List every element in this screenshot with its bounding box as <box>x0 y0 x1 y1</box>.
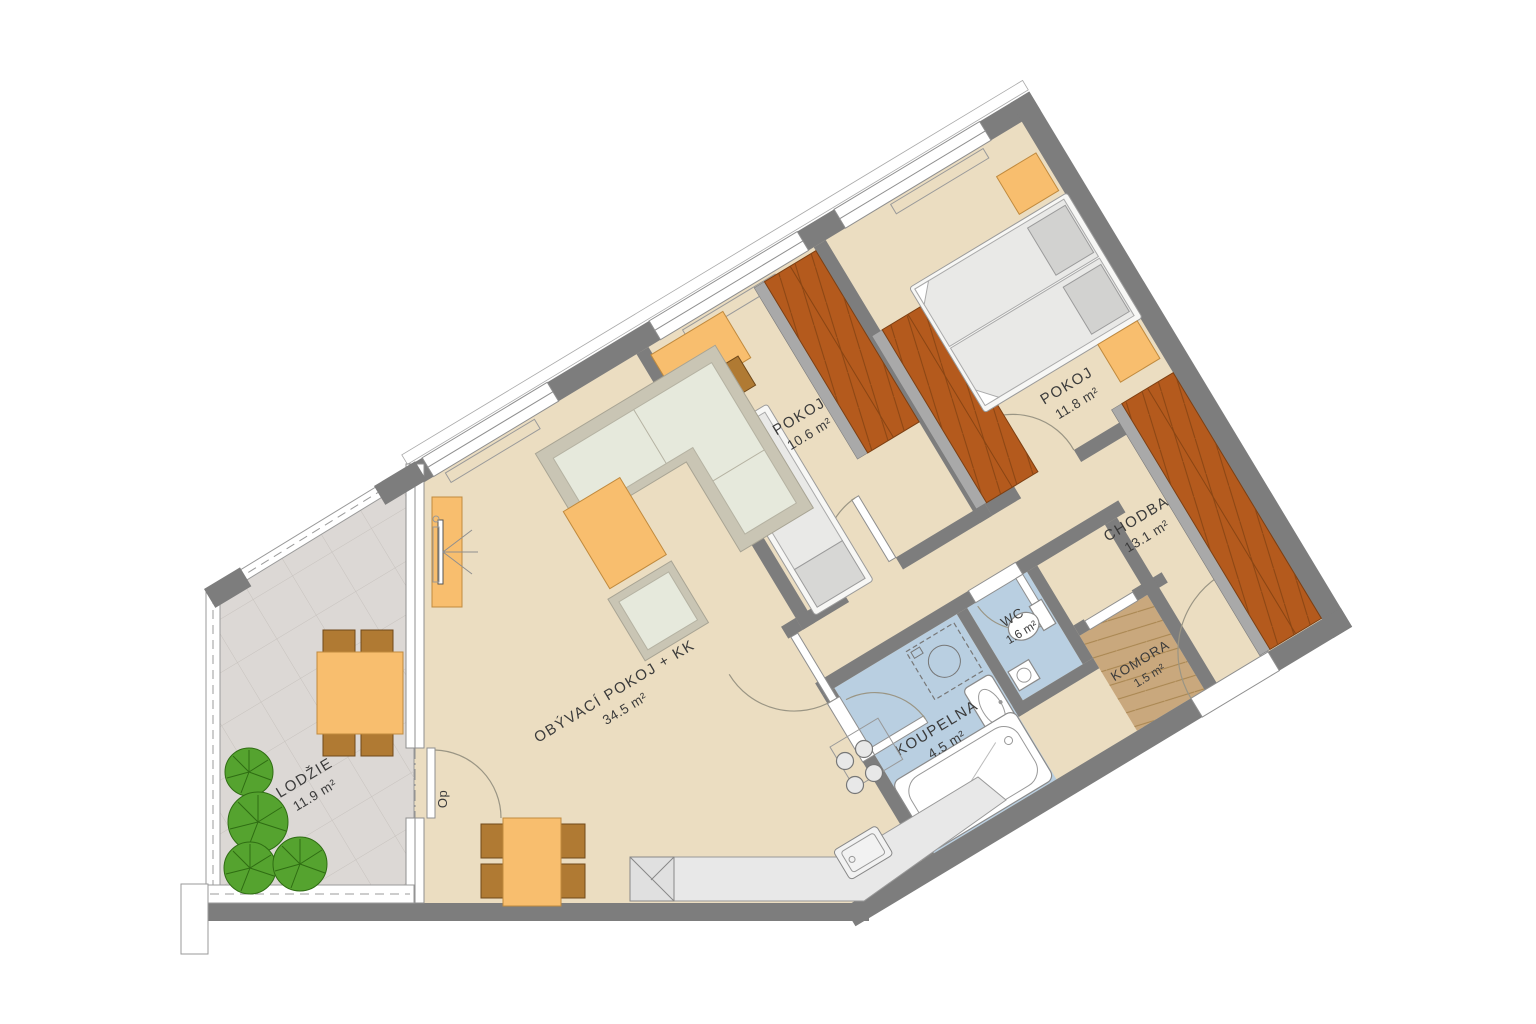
chair <box>481 864 505 898</box>
floor-plan: OBÝVACÍ POKOJ + KK 34.5 m² POKOJ 10.6 m²… <box>0 0 1536 1024</box>
tree-icon <box>224 842 276 894</box>
floor-plan-canvas: OBÝVACÍ POKOJ + KK 34.5 m² POKOJ 10.6 m²… <box>0 0 1536 1024</box>
chair <box>481 824 505 858</box>
chair <box>323 734 355 756</box>
loggia-table <box>317 652 403 734</box>
chair <box>561 864 585 898</box>
loggia-window <box>406 464 424 903</box>
chair <box>361 630 393 652</box>
chair <box>361 734 393 756</box>
dining-table <box>503 818 561 906</box>
tree-icon <box>225 748 273 796</box>
tree-icon <box>273 837 327 891</box>
fridge-icon <box>630 857 674 901</box>
chair <box>561 824 585 858</box>
chair <box>323 630 355 652</box>
balcony-door-label: Op <box>435 790 450 808</box>
railing-post <box>181 884 208 954</box>
